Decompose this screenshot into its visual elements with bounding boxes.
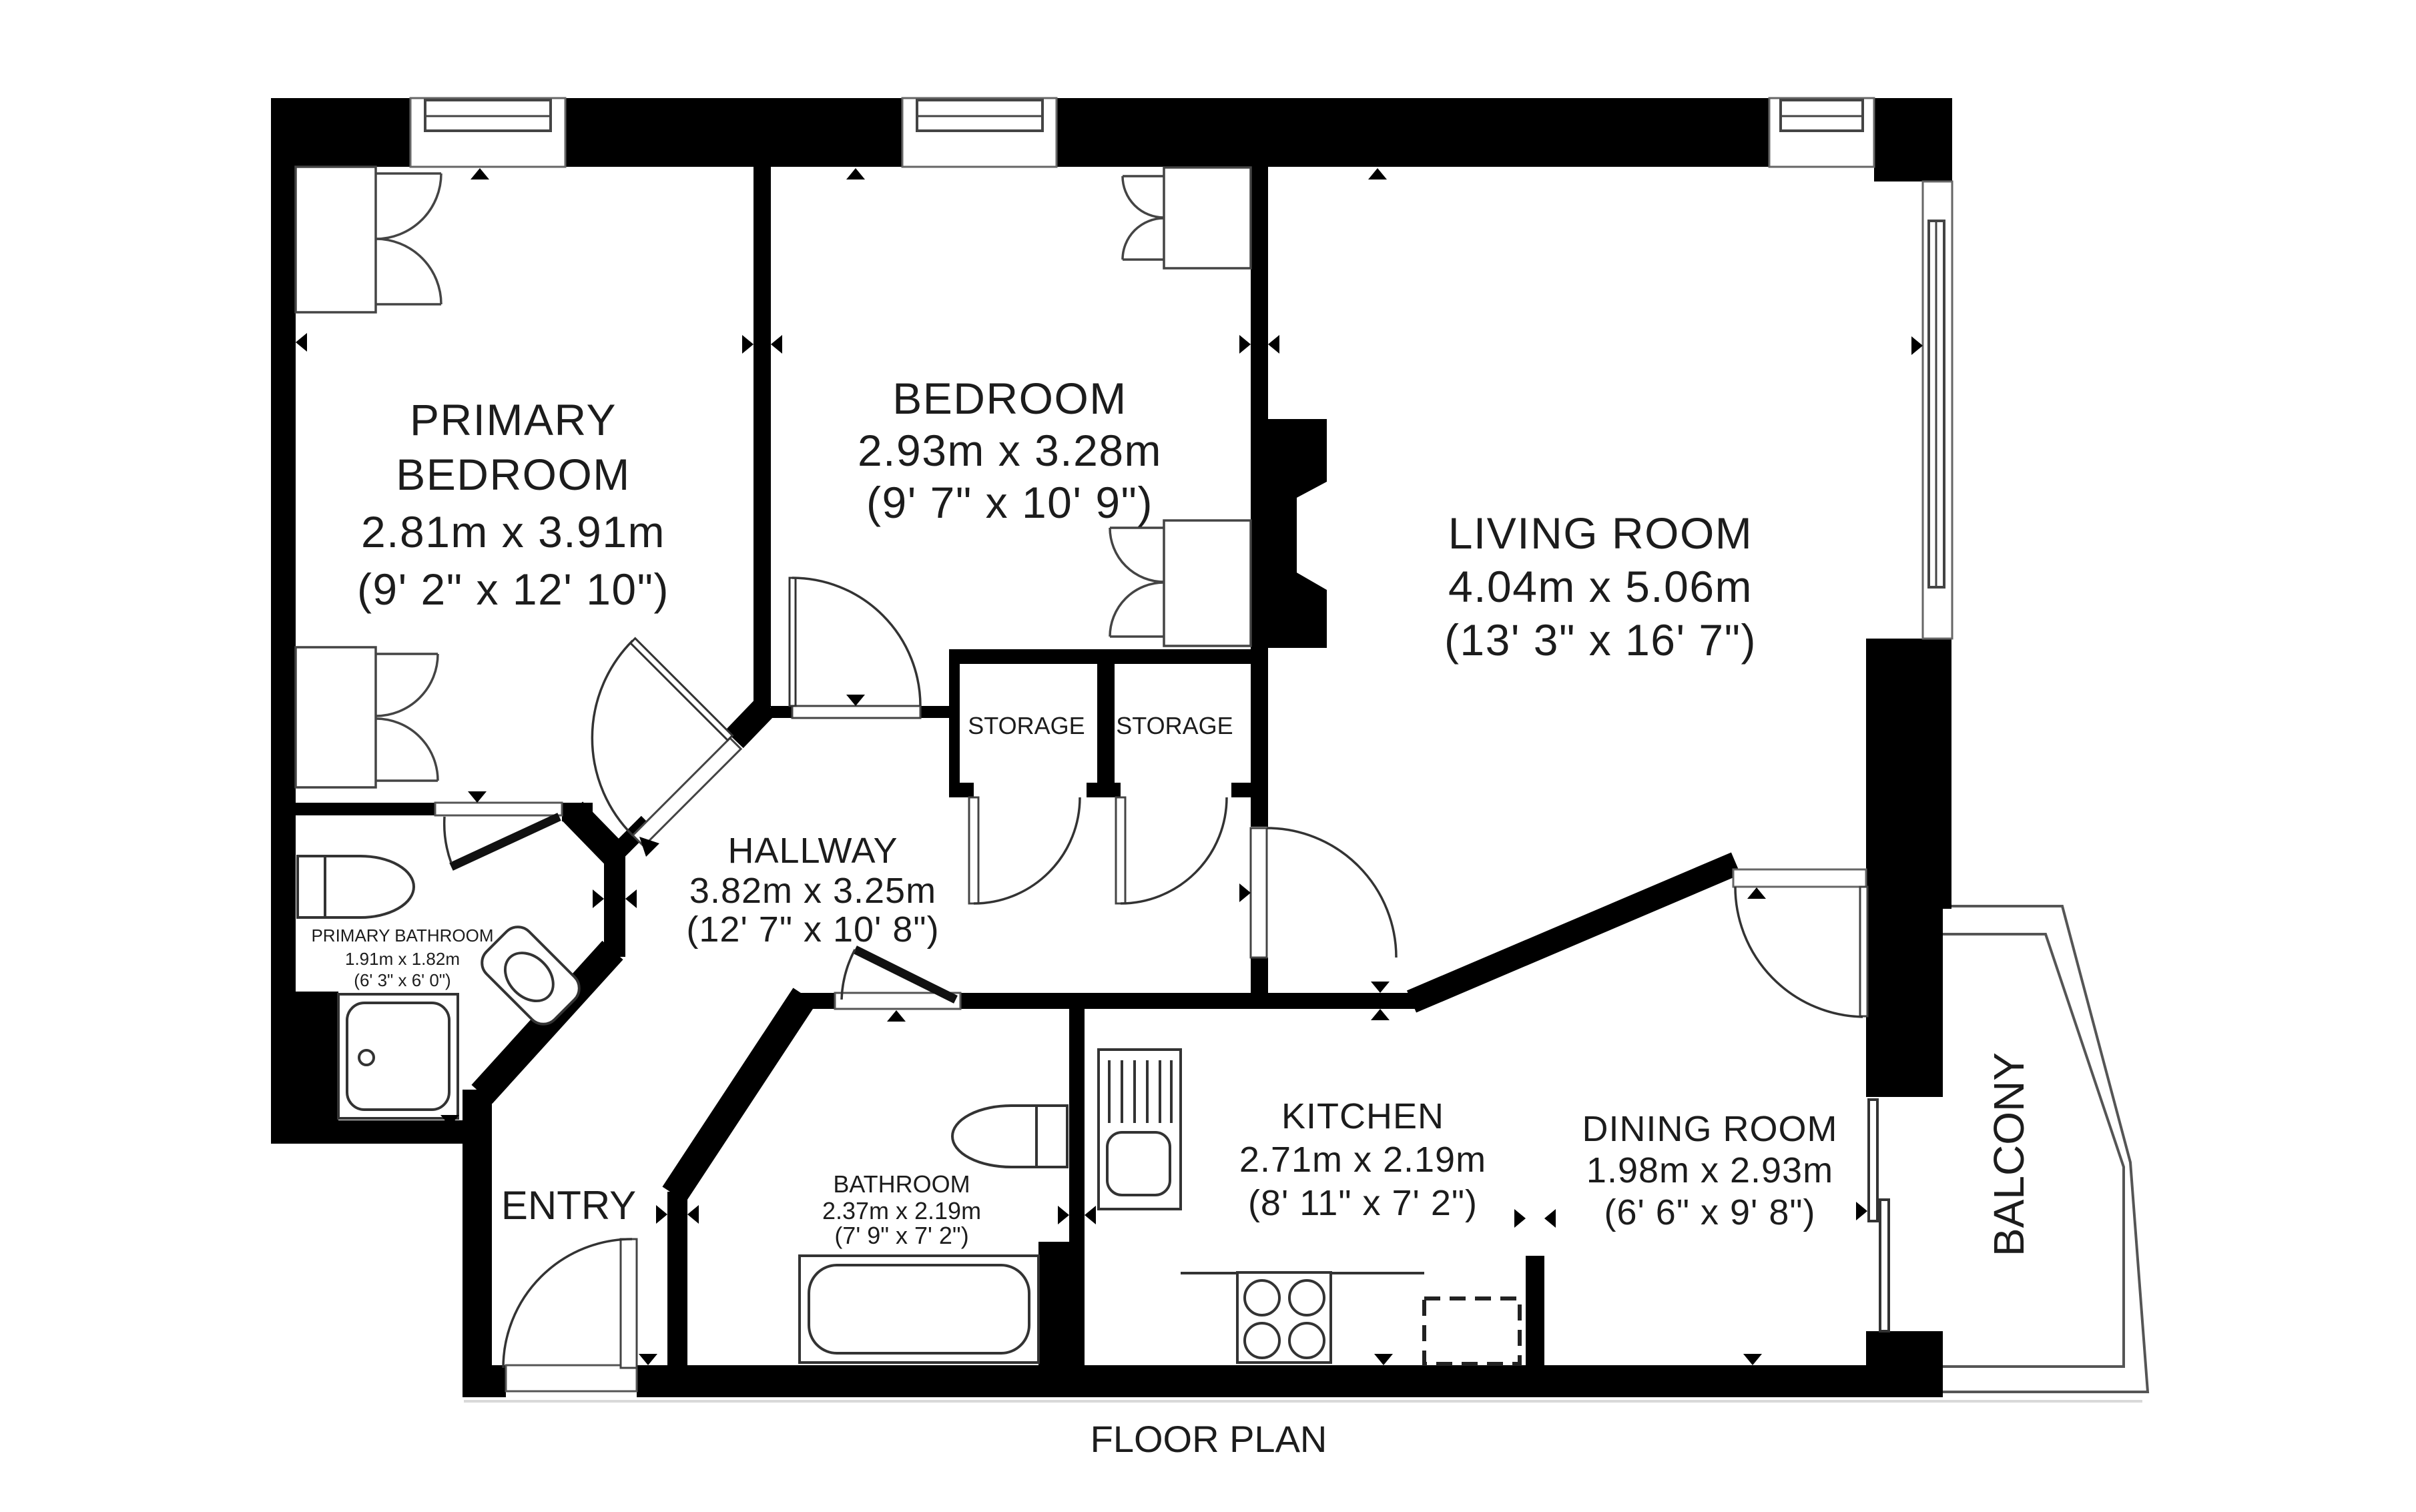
- svg-text:FLOOR PLAN: FLOOR PLAN: [1091, 1418, 1327, 1460]
- svg-text:(8' 11" x 7' 2"): (8' 11" x 7' 2"): [1248, 1183, 1478, 1223]
- svg-text:2.81m x 3.91m: 2.81m x 3.91m: [361, 507, 665, 556]
- svg-text:(9' 2" x 12' 10"): (9' 2" x 12' 10"): [357, 564, 669, 614]
- svg-text:(9' 7" x 10' 9"): (9' 7" x 10' 9"): [866, 478, 1153, 527]
- svg-text:2.93m x 3.28m: 2.93m x 3.28m: [858, 426, 1162, 475]
- svg-text:LIVING ROOM: LIVING ROOM: [1448, 508, 1753, 558]
- svg-text:PRIMARY: PRIMARY: [410, 395, 617, 444]
- svg-text:HALLWAY: HALLWAY: [727, 831, 898, 871]
- svg-text:BEDROOM: BEDROOM: [396, 450, 631, 499]
- svg-text:STORAGE: STORAGE: [1116, 712, 1233, 739]
- svg-text:BEDROOM: BEDROOM: [892, 374, 1127, 423]
- svg-text:(7' 9" x 7' 2"): (7' 9" x 7' 2"): [834, 1222, 968, 1249]
- svg-text:(6' 3" x 6' 0"): (6' 3" x 6' 0"): [354, 970, 450, 990]
- svg-text:4.04m x 5.06m: 4.04m x 5.06m: [1448, 562, 1753, 611]
- svg-text:(6' 6" x 9' 8"): (6' 6" x 9' 8"): [1604, 1192, 1815, 1232]
- svg-text:STORAGE: STORAGE: [968, 712, 1085, 739]
- svg-text:BATHROOM: BATHROOM: [833, 1170, 970, 1198]
- svg-text:1.91m x 1.82m: 1.91m x 1.82m: [345, 949, 460, 969]
- svg-text:ENTRY: ENTRY: [501, 1183, 636, 1228]
- svg-text:3.82m x 3.25m: 3.82m x 3.25m: [689, 871, 936, 911]
- svg-text:KITCHEN: KITCHEN: [1281, 1096, 1444, 1136]
- svg-text:DINING ROOM: DINING ROOM: [1582, 1109, 1838, 1149]
- svg-text:1.98m x 2.93m: 1.98m x 2.93m: [1586, 1150, 1833, 1190]
- svg-text:PRIMARY BATHROOM: PRIMARY BATHROOM: [311, 925, 493, 946]
- svg-text:(13' 3" x 16' 7"): (13' 3" x 16' 7"): [1444, 615, 1757, 665]
- svg-text:2.37m x 2.19m: 2.37m x 2.19m: [822, 1197, 981, 1224]
- svg-text:BALCONY: BALCONY: [1985, 1052, 2033, 1256]
- svg-text:(12' 7" x 10' 8"): (12' 7" x 10' 8"): [686, 909, 939, 950]
- svg-text:2.71m x 2.19m: 2.71m x 2.19m: [1239, 1140, 1486, 1180]
